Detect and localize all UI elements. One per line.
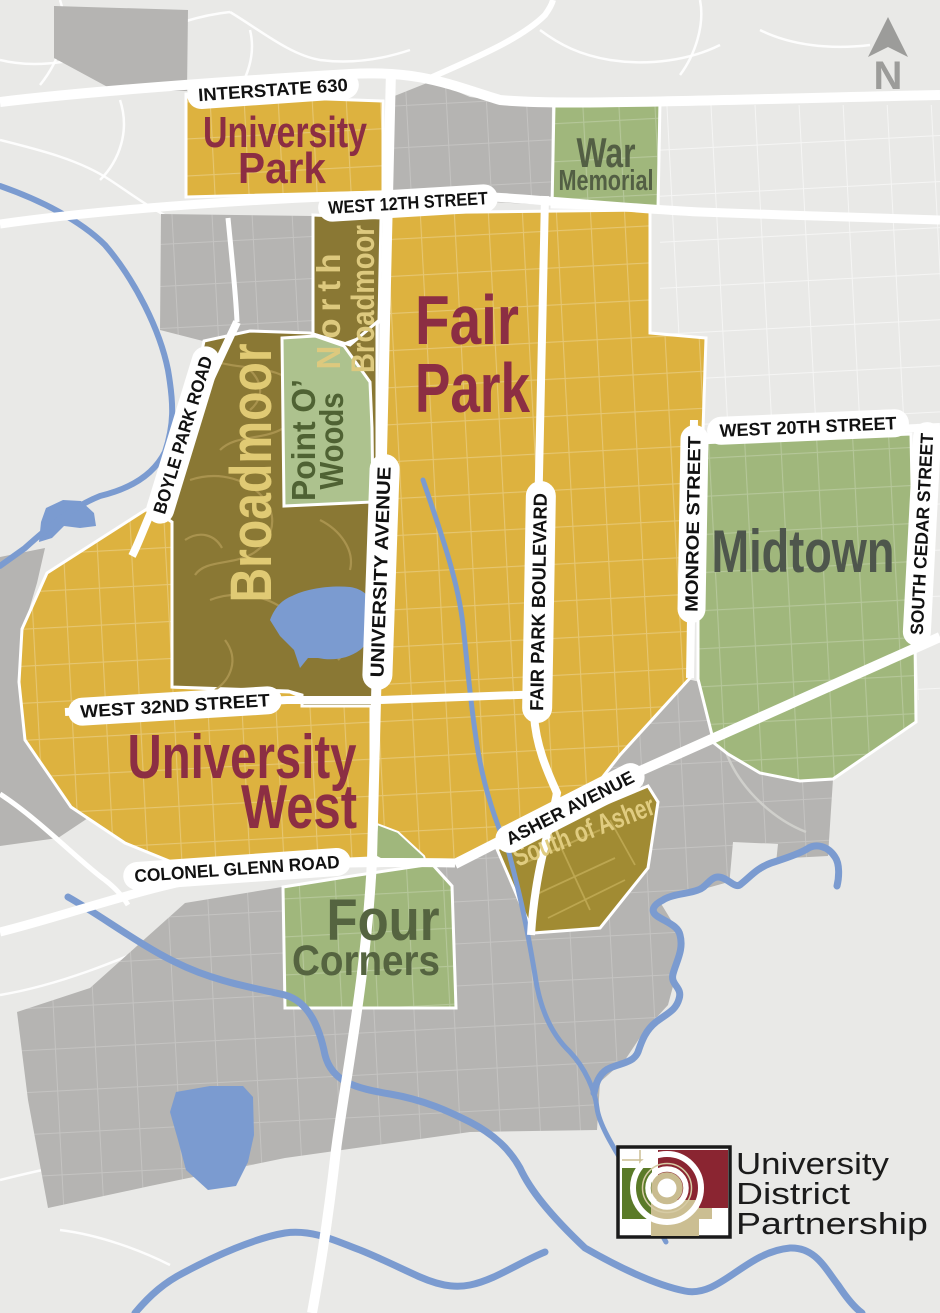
svg-text:West: West [241, 771, 357, 841]
svg-text:MONROE STREET: MONROE STREET [682, 436, 705, 613]
svg-text:University: University [736, 1146, 889, 1181]
svg-text:Memorial: Memorial [559, 165, 654, 197]
svg-text:Broadmoor: Broadmoor [346, 225, 381, 373]
svg-text:Woods: Woods [313, 392, 350, 489]
svg-text:Broadmoor: Broadmoor [220, 343, 284, 602]
svg-text:FAIR PARK BOULEVARD: FAIR PARK BOULEVARD [526, 493, 551, 711]
svg-text:Corners: Corners [292, 936, 440, 984]
svg-text:Midtown: Midtown [712, 519, 895, 586]
svg-text:Partnership: Partnership [736, 1207, 928, 1241]
svg-text:North: North [310, 247, 347, 370]
svg-text:Fair: Fair [415, 281, 519, 359]
svg-text:Park: Park [415, 350, 530, 428]
svg-text:N: N [874, 54, 903, 98]
svg-text:Park: Park [238, 143, 326, 192]
